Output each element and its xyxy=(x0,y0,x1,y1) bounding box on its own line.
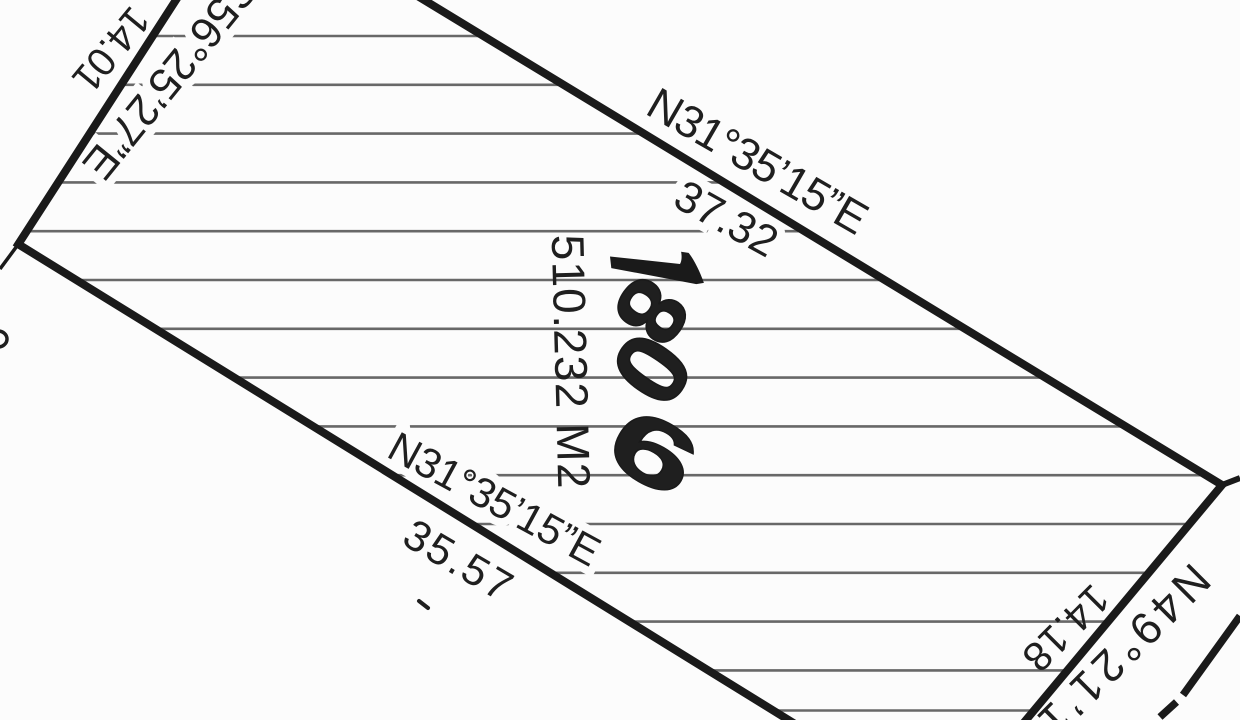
svg-text:510.232 M2: 510.232 M2 xyxy=(542,234,601,490)
